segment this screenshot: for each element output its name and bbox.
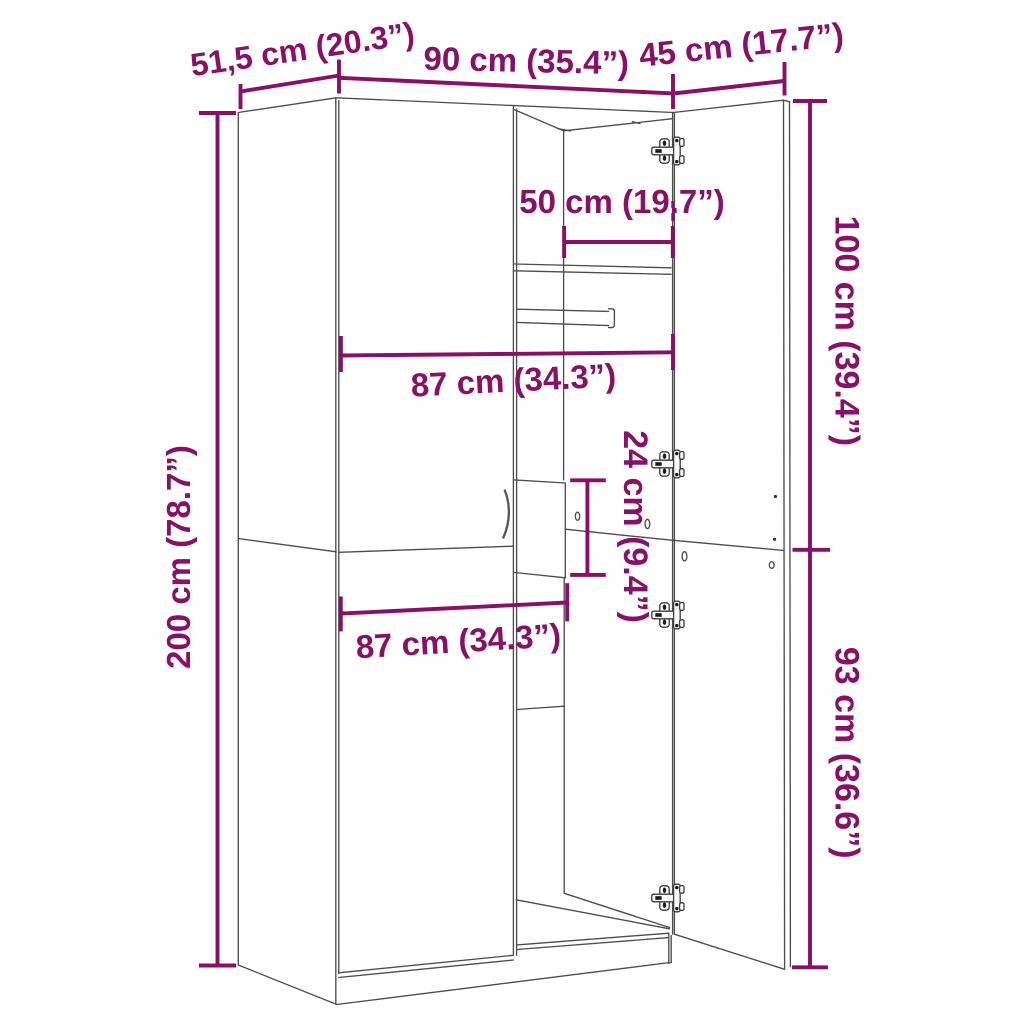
svg-text:50 cm (19.7”): 50 cm (19.7”) bbox=[519, 183, 724, 220]
svg-text:200 cm (78.7”): 200 cm (78.7”) bbox=[160, 445, 197, 669]
svg-text:93 cm (36.6”): 93 cm (36.6”) bbox=[828, 647, 866, 859]
svg-text:24 cm (9.4”): 24 cm (9.4”) bbox=[616, 430, 654, 623]
svg-text:100 cm (39.4”): 100 cm (39.4”) bbox=[828, 216, 866, 447]
svg-text:90 cm (35.4”): 90 cm (35.4”) bbox=[423, 40, 629, 82]
